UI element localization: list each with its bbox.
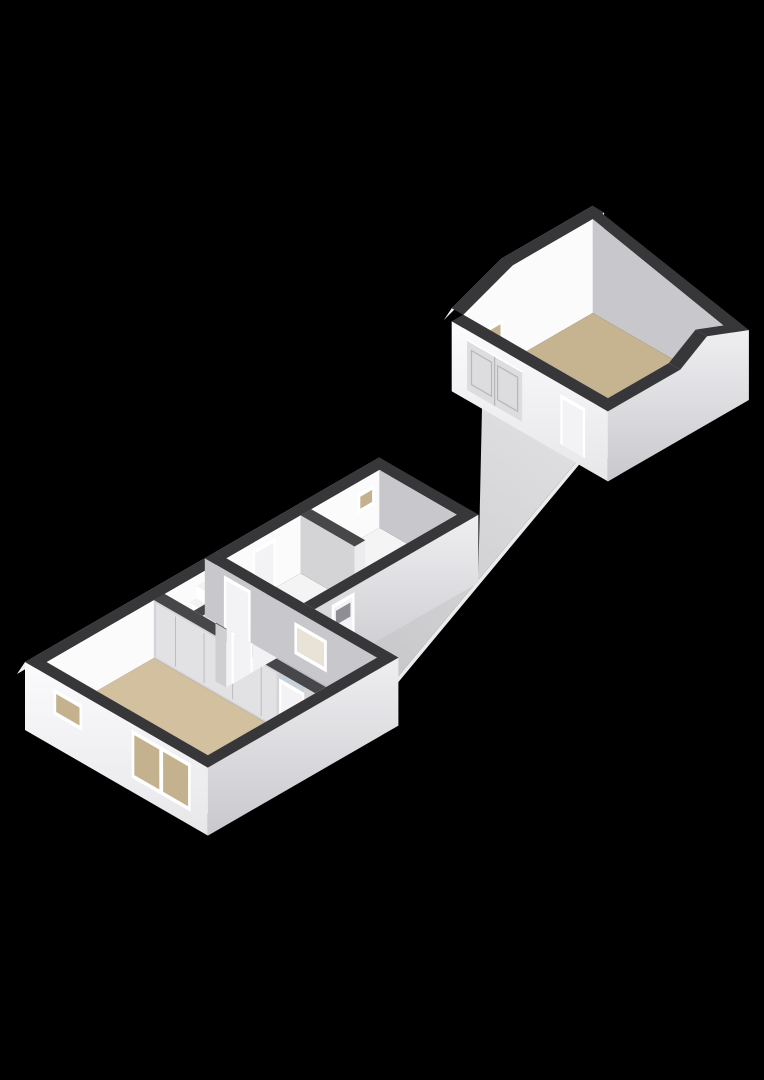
floorplan-scene [0,0,764,1080]
bath-divider-endcap [216,623,227,687]
bath-divider-wall-left [226,626,231,687]
floorplan-3d-render [0,0,764,1080]
